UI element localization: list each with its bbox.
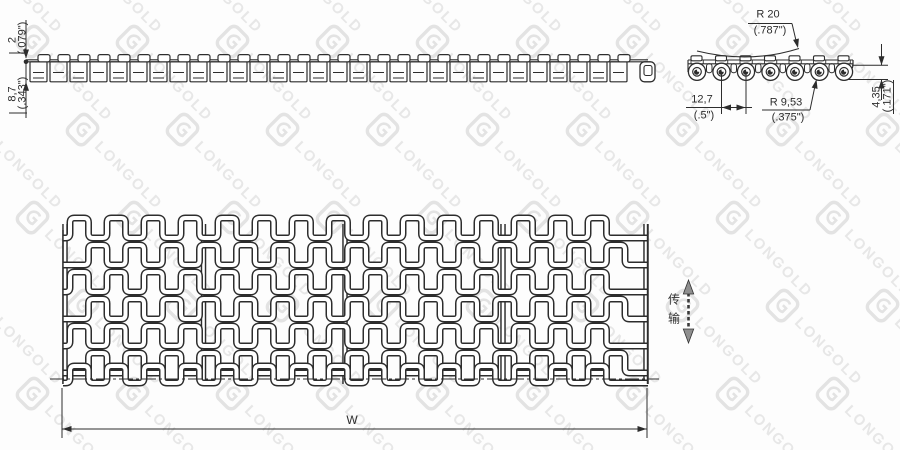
technical-drawing-canvas: LONGOLDLONGOLDLONGOLDLONGOLDLONGOLDLONGO…	[0, 0, 900, 450]
dim-back-flex-radius-inch: (.787")	[754, 26, 787, 37]
dim-hinge-radius-inch: (.375")	[772, 113, 805, 124]
dim-hinge-radius-mm: R 9,53	[770, 98, 802, 109]
dim-surface-thickness-inch: (.079")	[18, 22, 29, 55]
dim-hinge-height-inch: (.171")	[883, 80, 894, 113]
belt-drawing	[0, 0, 900, 450]
dim-belt-thickness-inch: (.343")	[18, 77, 29, 110]
dim-pitch-inch: (.5")	[694, 111, 714, 122]
direction-arrow	[683, 280, 693, 343]
top-view-drawing	[63, 218, 648, 384]
dim-belt-width-label: W	[346, 414, 357, 426]
dim-pitch-mm: 12,7	[691, 95, 712, 106]
end-view-drawing	[688, 49, 853, 81]
conveying-direction-label: 传输	[666, 293, 683, 331]
dim-back-flex-radius-mm: R 20	[756, 10, 779, 21]
side-view-drawing	[24, 55, 655, 82]
